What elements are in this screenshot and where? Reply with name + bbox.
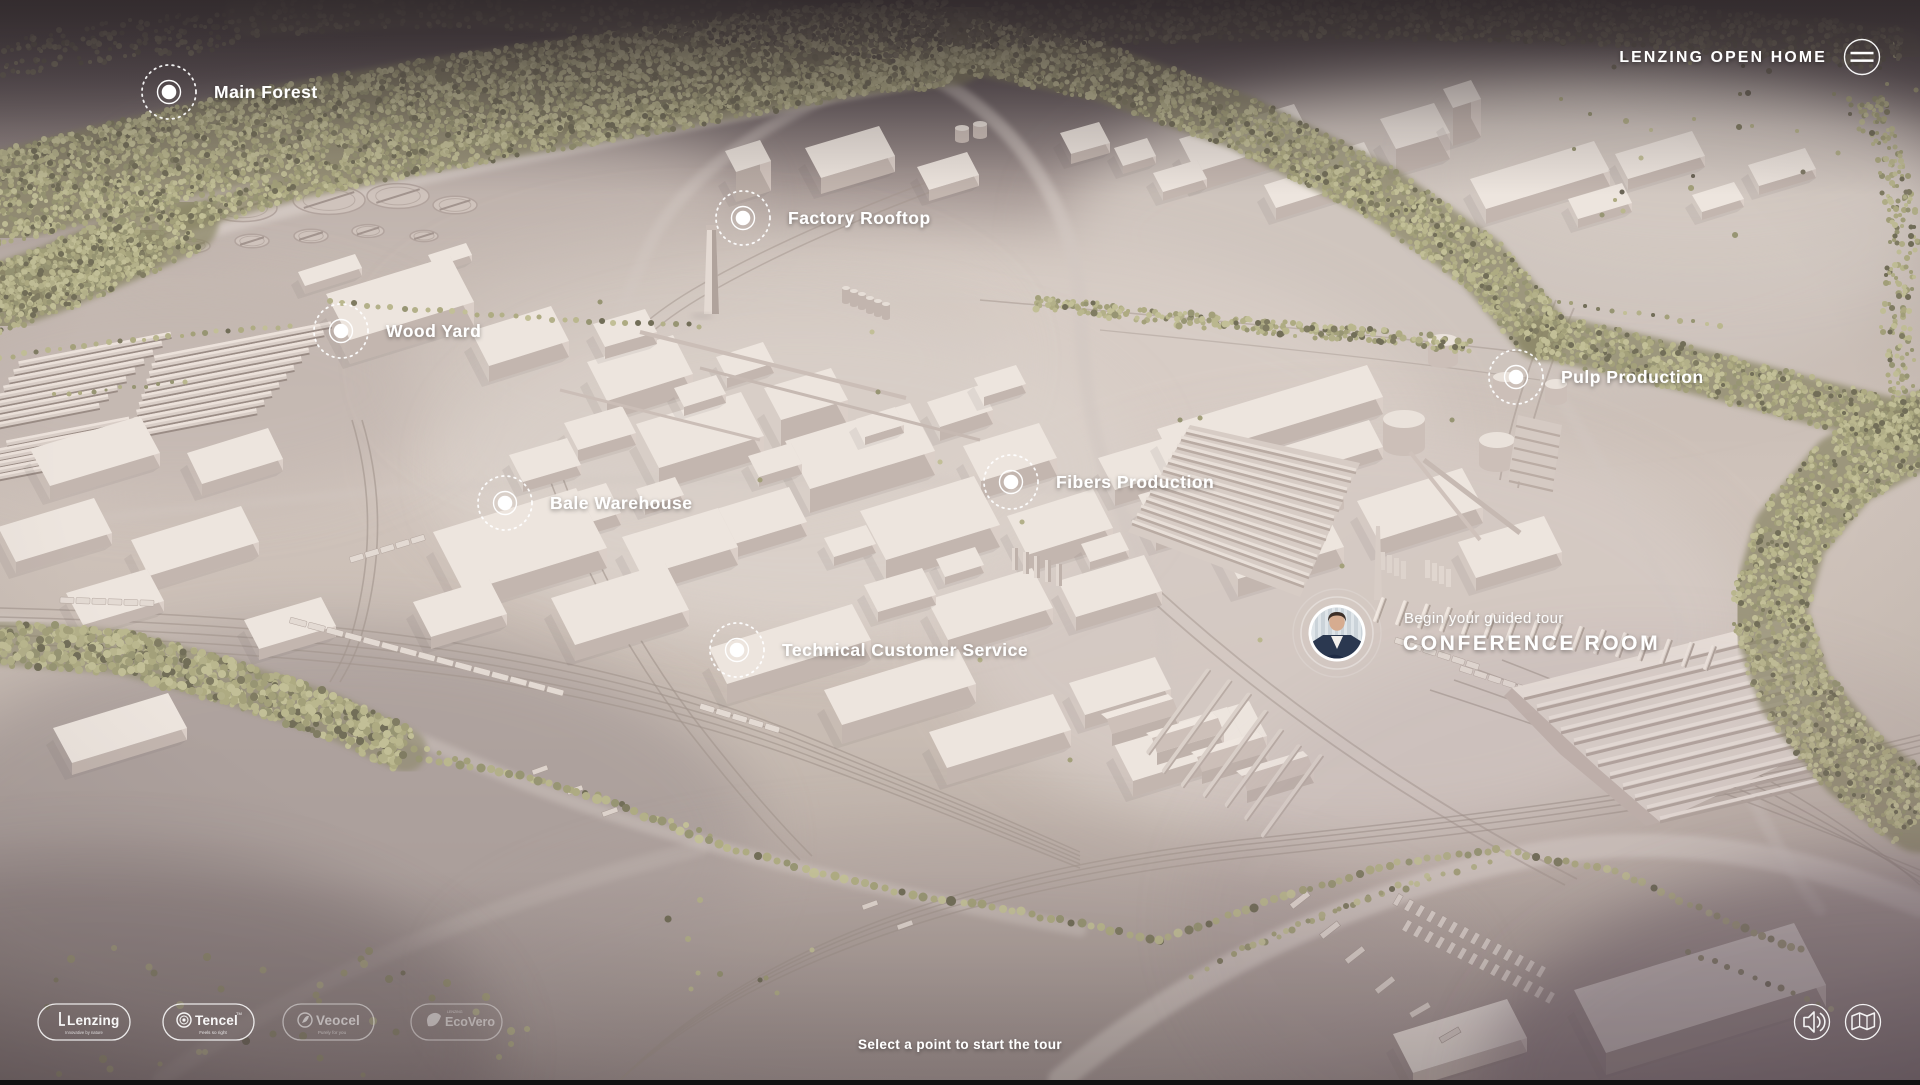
svg-text:Tencel: Tencel: [195, 1013, 238, 1028]
svg-text:Purely for you: Purely for you: [318, 1030, 347, 1035]
svg-text:Lenzing: Lenzing: [67, 1013, 119, 1028]
svg-text:Veocel: Veocel: [316, 1013, 360, 1028]
svg-text:Innovative by nature: Innovative by nature: [65, 1030, 103, 1035]
svg-text:Select a point to start the to: Select a point to start the tour: [858, 1037, 1062, 1052]
svg-text:LENZING OPEN HOME: LENZING OPEN HOME: [1619, 49, 1827, 66]
svg-text:LENZING: LENZING: [447, 1010, 463, 1014]
svg-text:Bale Warehouse: Bale Warehouse: [550, 493, 693, 513]
svg-text:Feels so right: Feels so right: [199, 1030, 227, 1035]
svg-text:CONFERENCE ROOM: CONFERENCE ROOM: [1403, 632, 1660, 655]
svg-text:TM: TM: [236, 1011, 242, 1016]
svg-text:Technical Customer Service: Technical Customer Service: [782, 640, 1028, 660]
svg-text:Pulp Production: Pulp Production: [1561, 367, 1704, 387]
svg-text:Factory Rooftop: Factory Rooftop: [788, 208, 931, 228]
svg-text:EcoVero: EcoVero: [445, 1015, 495, 1029]
svg-text:Main Forest: Main Forest: [214, 82, 318, 102]
svg-text:Wood Yard: Wood Yard: [386, 321, 481, 341]
svg-text:Fibers Production: Fibers Production: [1056, 472, 1214, 492]
svg-text:Begin your guided tour: Begin your guided tour: [1404, 610, 1564, 627]
